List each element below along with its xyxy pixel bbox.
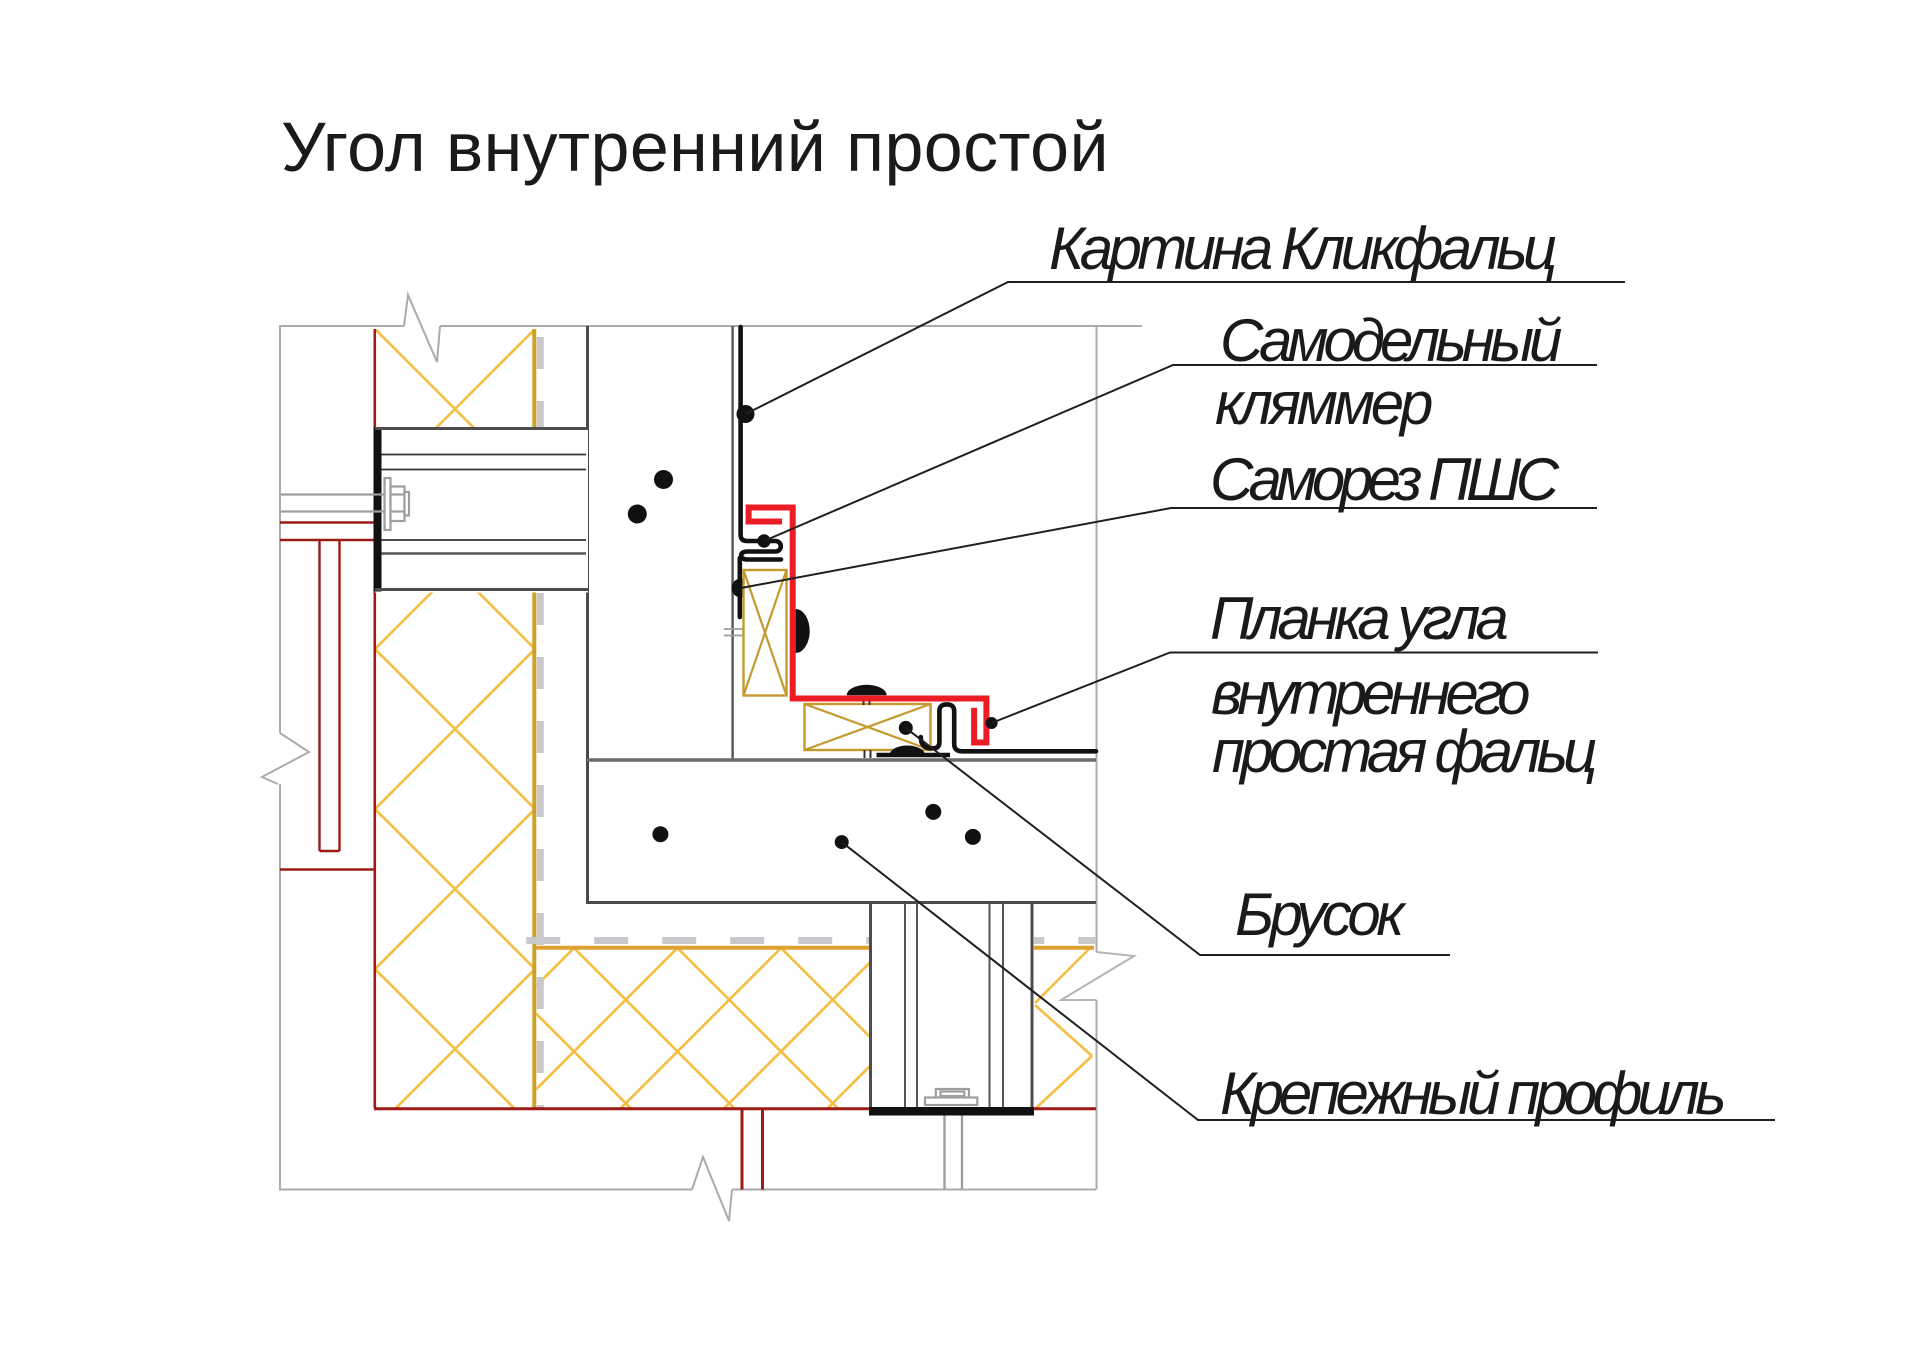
svg-text:Брусок: Брусок: [1235, 881, 1407, 948]
svg-text:Самодельный: Самодельный: [1220, 307, 1562, 374]
svg-text:Картина Кликфальц: Картина Кликфальц: [1049, 215, 1556, 282]
svg-text:кляммер: кляммер: [1215, 370, 1432, 437]
svg-text:Планка угла: Планка угла: [1210, 585, 1507, 652]
svg-text:Угол внутренний простой: Угол внутренний простой: [281, 108, 1109, 186]
svg-text:Крепежный профиль: Крепежный профиль: [1220, 1060, 1724, 1127]
svg-text:простая фальц: простая фальц: [1212, 718, 1596, 785]
svg-text:Саморез ПШС: Саморез ПШС: [1210, 446, 1560, 513]
svg-text:внутреннего: внутреннего: [1211, 660, 1529, 727]
